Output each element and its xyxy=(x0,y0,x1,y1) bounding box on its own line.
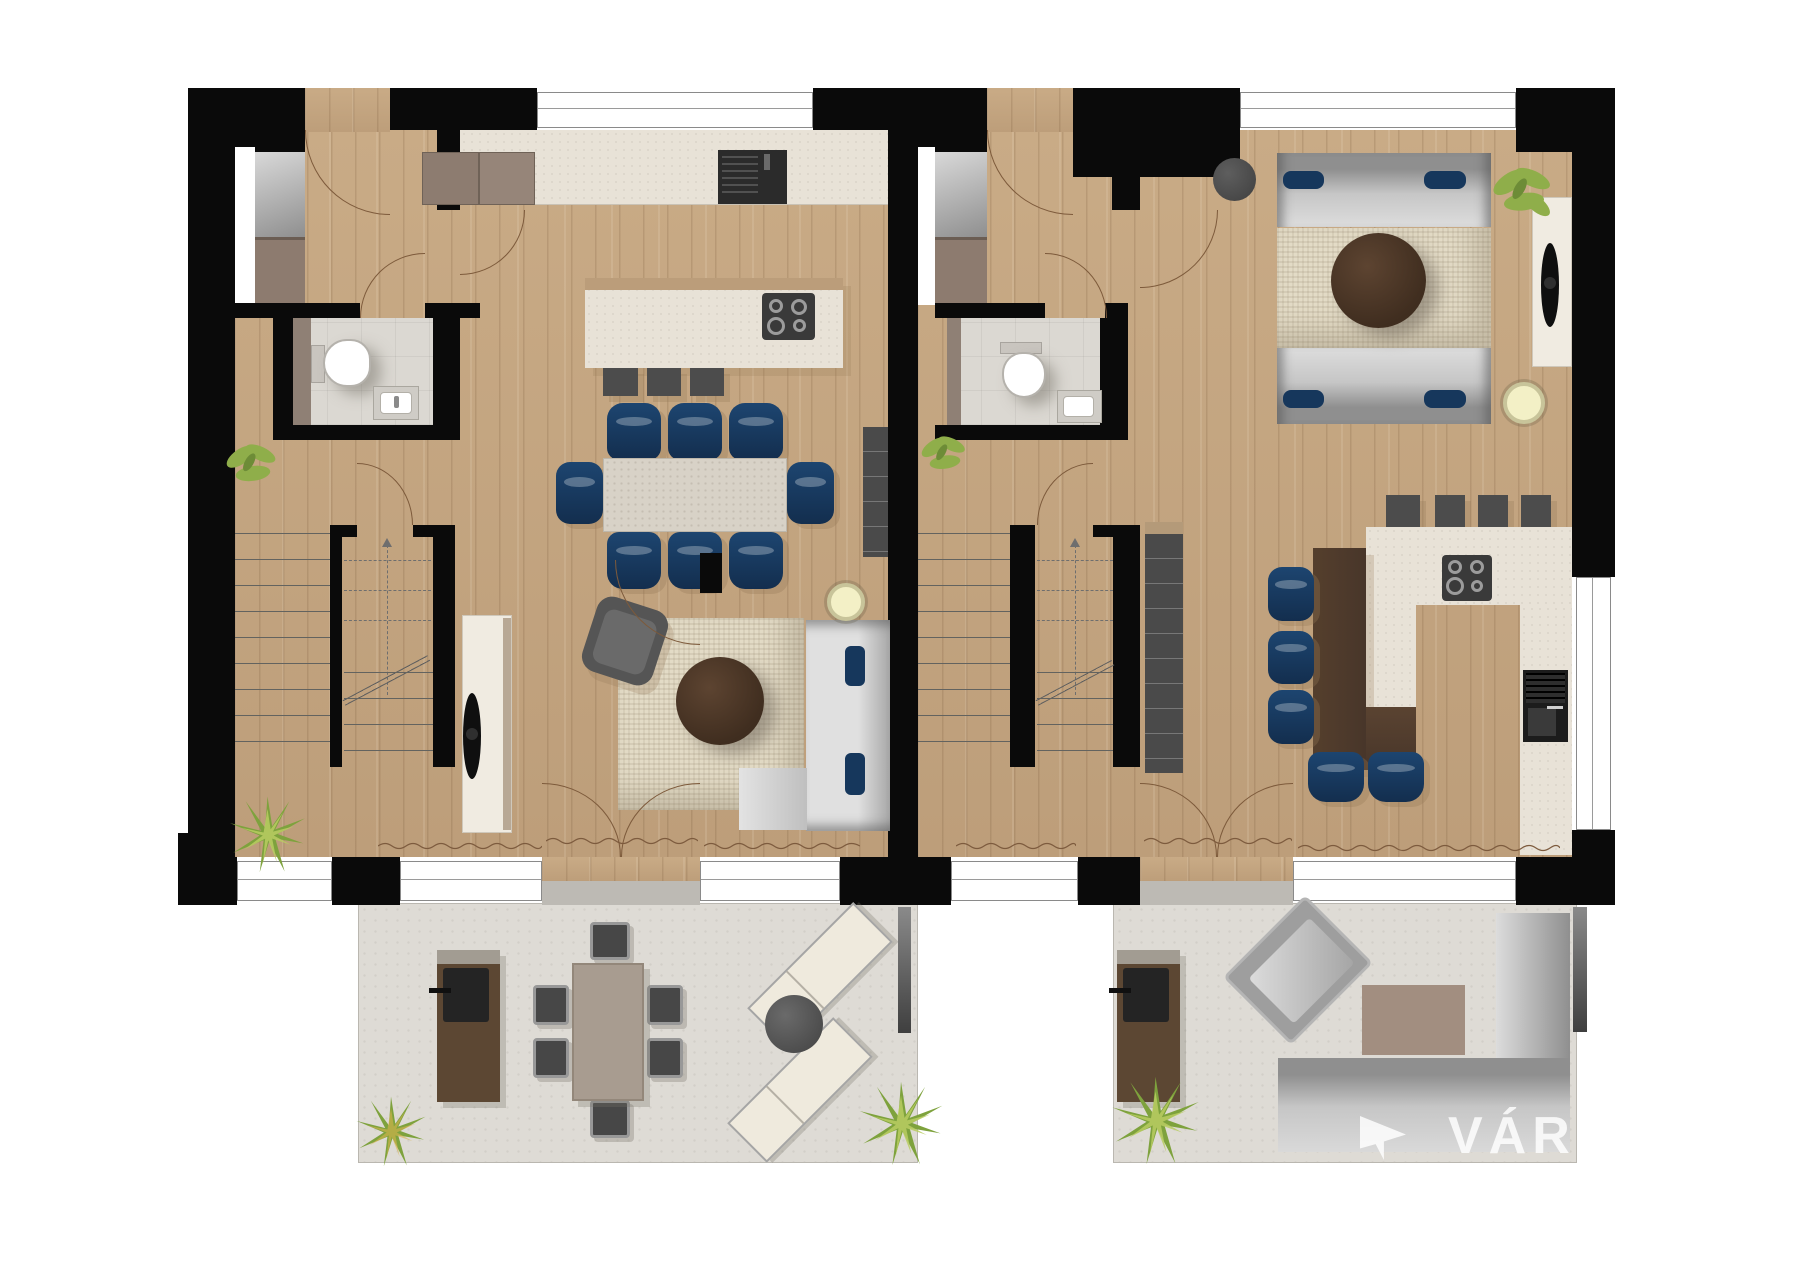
unit-b-oven xyxy=(1523,670,1568,742)
terrace-a-bbq-station xyxy=(437,950,500,1102)
sofa-cushion xyxy=(845,753,865,795)
dining-chair xyxy=(1268,690,1314,744)
unit-a-floor-lamp xyxy=(827,583,865,621)
wall-bottom-corner-right xyxy=(1516,857,1615,905)
unit-b-shelf-top xyxy=(1145,522,1183,534)
terrace-a-side-table xyxy=(765,995,823,1053)
outdoor-chair xyxy=(590,922,630,960)
unit-a-wc-wall-left xyxy=(273,303,293,440)
unit-b-wc-accent-wall xyxy=(947,318,961,425)
sideboard-wood-edge xyxy=(503,618,511,830)
unit-a-stair-stub-2 xyxy=(413,525,433,537)
bbq-counter-top xyxy=(437,950,500,964)
outdoor-chair xyxy=(647,1038,683,1078)
unit-a-stairs-open-flight xyxy=(235,533,330,767)
unit-a-sofa-chaise xyxy=(739,768,807,830)
outdoor-chair xyxy=(590,1100,630,1138)
niche-unit-b xyxy=(918,147,935,305)
unit-a-living-door-stub xyxy=(700,553,722,593)
window-bottom-5 xyxy=(1293,861,1516,901)
unit-a-wc-wall-right xyxy=(433,318,460,440)
wall-top-b1 xyxy=(1073,88,1240,177)
unit-a-bar-stool xyxy=(603,368,638,396)
burner xyxy=(791,299,807,315)
stair-direction-arrow xyxy=(1070,538,1080,547)
unit-a-toilet xyxy=(323,339,371,387)
oven-vents xyxy=(1526,673,1565,703)
wall-corner-top-right xyxy=(1516,88,1615,152)
watermark-logo-icon xyxy=(1360,1116,1406,1160)
unit-b-stair-wall-b xyxy=(1113,525,1140,767)
terrace-a-edge-bench xyxy=(898,907,911,1033)
unit-a-wall-shelf xyxy=(863,427,888,557)
window-right-wall xyxy=(1576,577,1611,830)
unit-b-tv-lens xyxy=(1544,277,1556,289)
oven-handle xyxy=(1547,706,1563,709)
plant-yucca-icon xyxy=(225,795,310,873)
unit-b-sofa-top xyxy=(1277,153,1491,227)
unit-a-bar-stool xyxy=(690,368,724,396)
floor-plan-canvas: VÁR xyxy=(0,0,1811,1280)
dining-chair xyxy=(1368,752,1424,802)
window-top-unit-b xyxy=(1240,92,1516,128)
dining-chair xyxy=(668,403,722,460)
watermark: VÁR xyxy=(1350,1106,1596,1164)
unit-b-wc-wall-top-b xyxy=(1105,303,1128,318)
burner xyxy=(1446,577,1464,595)
unit-a-wc-accent-wall xyxy=(293,318,311,425)
unit-a-stairs-lower-flight xyxy=(344,672,433,767)
unit-b-wardrobe xyxy=(935,237,987,305)
unit-a-washbasin-faucet xyxy=(394,396,399,408)
burner xyxy=(793,319,806,332)
outdoor-chair xyxy=(647,985,683,1025)
oven-door xyxy=(1528,708,1556,736)
terrace-b-door-threshold xyxy=(1140,857,1293,881)
unit-b-bar-stool xyxy=(1478,495,1508,527)
unit-a-stair-stub-1 xyxy=(342,525,357,537)
dining-chair xyxy=(556,462,603,524)
wall-top-a1 xyxy=(390,88,537,130)
wall-right-upper xyxy=(1572,152,1615,577)
unit-a-wc-wall-top-b xyxy=(425,303,480,318)
curtain-squiggle xyxy=(704,841,860,851)
unit-a-kitchen-sink-unit xyxy=(718,150,787,204)
plant-yucca-icon xyxy=(350,1095,432,1167)
unit-a-induction-hob xyxy=(762,293,815,340)
bbq-handle xyxy=(1109,988,1131,993)
unit-b-bar-stool xyxy=(1435,495,1465,527)
window-top-unit-a xyxy=(537,92,813,128)
unit-b-entry-door-threshold xyxy=(987,88,1073,132)
unit-a-entry-door-threshold xyxy=(305,88,390,132)
terrace-b-edge-bar xyxy=(1573,907,1587,1032)
burner xyxy=(767,317,785,335)
curtain-squiggle xyxy=(956,841,1076,851)
unit-b-stair-wall-a xyxy=(1010,525,1035,767)
unit-a-wc-wall-top-a xyxy=(235,303,360,318)
outdoor-chair xyxy=(533,1038,569,1078)
unit-b-induction-hob xyxy=(1442,555,1492,601)
terrace-a-door-threshold xyxy=(542,857,700,881)
unit-b-stairs-open-flight xyxy=(918,533,1010,767)
window-bottom-2 xyxy=(400,861,542,901)
unit-b-stair-stub xyxy=(1093,525,1113,537)
dining-chair xyxy=(729,403,783,460)
sofa-cushion xyxy=(845,646,865,686)
sofa-cushion xyxy=(1424,171,1466,189)
sofa-cushion xyxy=(1283,390,1324,408)
unit-b-wall-shelf xyxy=(1145,534,1183,773)
unit-b-coffee-table xyxy=(1331,233,1426,328)
curtain-squiggle xyxy=(1298,843,1560,853)
unit-a-stair-wall-a xyxy=(330,525,342,767)
unit-a-wardrobe xyxy=(255,237,305,305)
island-wood-edge xyxy=(585,278,843,290)
unit-a-coffee-table xyxy=(676,657,764,745)
bbq-grill xyxy=(1123,968,1169,1022)
unit-b-wc-wall-right xyxy=(1100,318,1128,440)
burner xyxy=(769,299,783,313)
curtain-squiggle xyxy=(378,841,542,851)
sink-drainer xyxy=(722,156,758,198)
outdoor-chair xyxy=(533,985,569,1025)
wall-bottom-party-pier xyxy=(840,857,951,905)
sink-faucet xyxy=(764,154,770,170)
terrace-b-outdoor-rug xyxy=(1362,985,1465,1055)
unit-a-kitchen-tall-cabinet-1 xyxy=(422,152,479,205)
unit-b-floor-lamp xyxy=(1503,382,1545,424)
terrace-a-dining-table xyxy=(572,963,644,1101)
unit-b-dining-table xyxy=(1313,548,1366,770)
burner xyxy=(1470,560,1484,574)
plant-yucca-icon xyxy=(1108,1075,1203,1165)
unit-b-entry-stub-wall xyxy=(1112,130,1140,210)
sofa-cushion xyxy=(1424,390,1466,408)
burner xyxy=(1471,580,1483,592)
plant-leafy-icon xyxy=(222,435,284,497)
dining-chair xyxy=(787,462,834,524)
dining-chair xyxy=(607,403,661,460)
plant-yucca-icon xyxy=(858,1078,944,1168)
unit-b-pouf xyxy=(1213,158,1256,201)
unit-b-toilet xyxy=(1002,352,1046,398)
dining-chair xyxy=(1308,752,1364,802)
lounger-split xyxy=(766,1086,804,1124)
terrace-b-sofa-right xyxy=(1496,913,1570,1063)
plant-leafy-icon xyxy=(915,428,975,483)
window-bottom-4 xyxy=(951,861,1078,901)
unit-b-wardrobe-mirror xyxy=(935,152,987,237)
niche-unit-a xyxy=(235,147,255,305)
unit-a-bar-stool xyxy=(647,368,681,396)
terrace-b-step xyxy=(1140,881,1293,905)
window-bottom-3 xyxy=(700,861,840,901)
unit-b-bar-stool xyxy=(1386,495,1420,527)
unit-a-wardrobe-mirror xyxy=(255,152,305,237)
burner xyxy=(1448,560,1462,574)
plant-leafy-icon xyxy=(1488,156,1560,230)
unit-a-kitchen-tall-cabinet-2 xyxy=(479,152,535,205)
unit-b-sofa-bottom xyxy=(1277,348,1491,424)
unit-a-tv-lens xyxy=(466,728,478,740)
unit-b-bar-stool xyxy=(1521,495,1551,527)
unit-b-wc-wall-top-a xyxy=(935,303,1045,318)
bbq-counter-top xyxy=(1117,950,1180,964)
unit-a-stair-wall-b xyxy=(433,525,455,767)
bbq-grill xyxy=(443,968,489,1022)
wall-party xyxy=(888,88,918,905)
unit-b-stairs-lower-flight xyxy=(1037,672,1113,767)
terrace-a-step xyxy=(542,881,700,905)
unit-a-dining-table xyxy=(603,458,787,532)
dining-chair xyxy=(1268,567,1314,621)
watermark-text: VÁR xyxy=(1448,1106,1576,1164)
sofa-cushion xyxy=(1283,171,1324,189)
unit-a-wc-wall-bottom xyxy=(273,425,460,440)
stair-direction-arrow xyxy=(382,538,392,547)
dining-chair xyxy=(1268,631,1314,684)
wall-bottom-pier-b xyxy=(1078,857,1140,905)
dining-chair xyxy=(729,532,783,589)
wall-bottom-pier-a xyxy=(332,857,400,905)
unit-b-washbasin xyxy=(1063,396,1094,417)
bbq-handle xyxy=(429,988,451,993)
unit-b-kitchen-counter-left xyxy=(1366,605,1416,707)
